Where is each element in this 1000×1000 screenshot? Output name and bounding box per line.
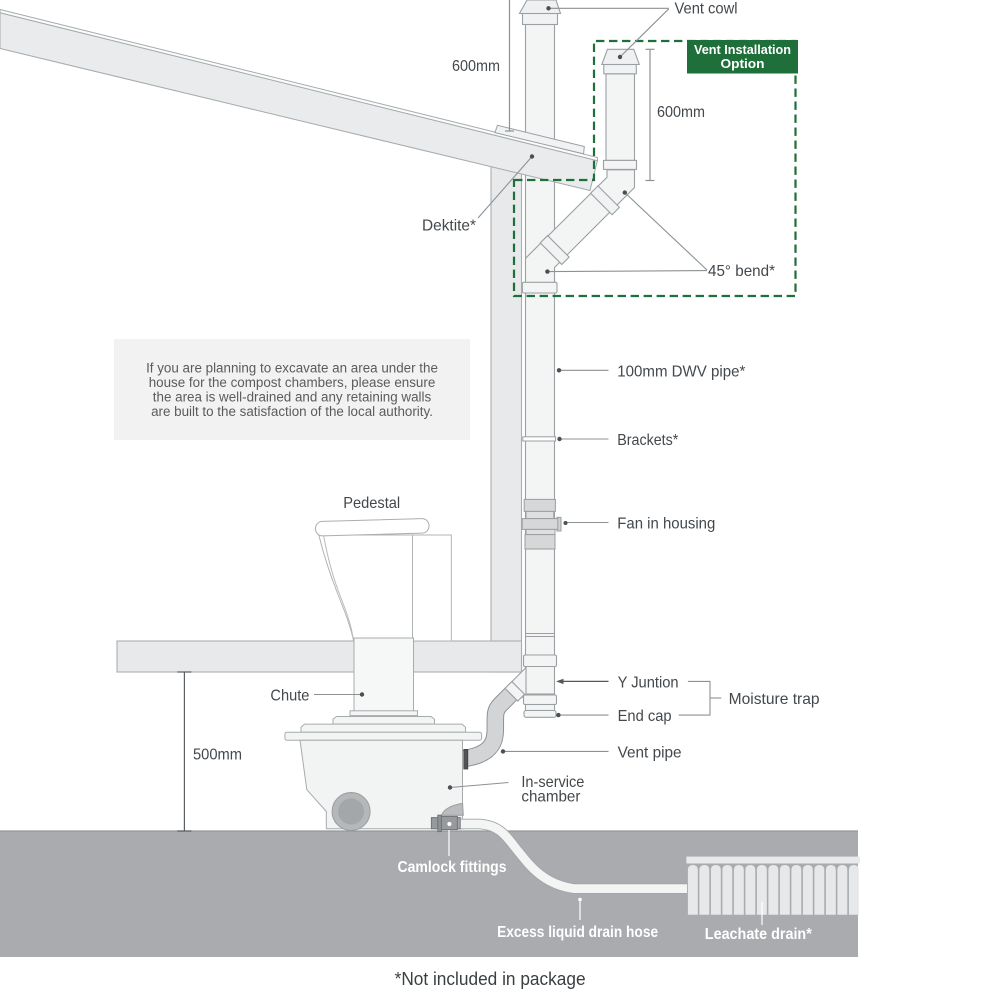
svg-text:house for the compost chambers: house for the compost chambers, please e…: [149, 375, 436, 390]
svg-text:the area is well-drained and a: the area is well-drained and any retaini…: [153, 390, 432, 405]
svg-text:500mm: 500mm: [193, 747, 242, 764]
svg-text:chamber: chamber: [521, 789, 581, 806]
svg-text:Leachate drain*: Leachate drain*: [705, 926, 813, 943]
svg-text:are built to the satisfaction: are built to the satisfaction of the loc…: [151, 404, 433, 419]
svg-text:Moisture trap: Moisture trap: [729, 691, 820, 708]
svg-text:Option: Option: [721, 56, 765, 71]
svg-text:100mm DWV pipe*: 100mm DWV pipe*: [617, 364, 745, 381]
svg-text:Vent cowl: Vent cowl: [675, 1, 738, 18]
svg-text:Dektite*: Dektite*: [422, 218, 476, 235]
svg-text:Fan in housing: Fan in housing: [617, 516, 715, 533]
svg-text:End cap: End cap: [618, 708, 672, 725]
svg-text:If you are planning to excavat: If you are planning to excavate an area …: [146, 361, 438, 376]
svg-text:Excess liquid drain hose: Excess liquid drain hose: [497, 924, 658, 941]
svg-text:600mm: 600mm: [452, 58, 500, 75]
svg-text:Vent pipe: Vent pipe: [618, 745, 682, 762]
svg-text:600mm: 600mm: [657, 104, 705, 121]
svg-text:45° bend*: 45° bend*: [708, 263, 775, 280]
svg-text:Vent Installation: Vent Installation: [694, 42, 791, 57]
svg-text:*Not included in package: *Not included in package: [395, 969, 586, 989]
svg-text:Brackets*: Brackets*: [617, 432, 678, 449]
svg-text:Pedestal: Pedestal: [343, 495, 400, 512]
svg-text:Camlock fittings: Camlock fittings: [398, 859, 507, 876]
svg-text:Chute: Chute: [270, 688, 309, 705]
svg-text:Y Juntion: Y Juntion: [618, 675, 679, 692]
